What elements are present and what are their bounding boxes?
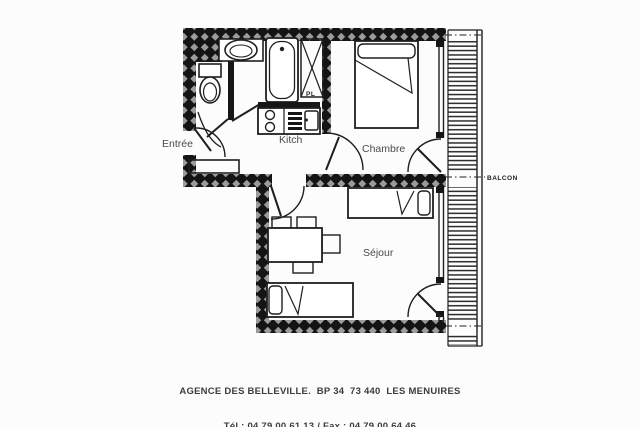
balcony-deck-bedroom [448,41,477,172]
agency-footer: AGENCE DES BELLEVILLE. BP 34 73 440 LES … [0,363,640,427]
room-label-bedroom: Chambre [362,143,405,155]
wall-wc-divider [228,61,234,120]
grill-bar [288,127,302,130]
balcony [445,30,485,346]
balcony-deck-lower [448,333,477,345]
single-bed-top-frame [348,188,433,218]
dining-set [268,217,340,273]
window-post [436,132,444,138]
room-label-kitchen: Kitch [279,134,303,146]
window-post [436,41,444,47]
wc-door-arc [198,112,221,147]
window-post [436,187,444,193]
toilet-tank [199,64,221,77]
window-post [436,277,444,283]
grill-bar [288,112,302,115]
bedroom-balcony-door-leaf [418,149,441,172]
kitchen-counter-strip [258,102,320,108]
single-bed-top [348,188,433,218]
chair [297,217,316,228]
wall-left-upper [183,28,196,131]
bedroom-door-leaf [326,137,339,170]
room-label-living: Séjour [363,247,394,259]
grill-bar [288,117,302,120]
double-bed-frame [355,41,418,128]
agency-phone-line: Tél : 04.79.00.61.13 / Fax : 04.79.00.64… [0,421,640,427]
balcony-deck-living [448,187,477,320]
single-bed-bottom [267,283,353,317]
floor-plan-page: PL Entrée Kitch [0,0,640,427]
grill-bar [288,122,302,125]
closet: PL [301,39,323,98]
bathroom-door-leaf [232,104,260,121]
dining-table [268,228,322,262]
wall-bedroom-living-divider [306,174,446,187]
agency-address-line: AGENCE DES BELLEVILLE. BP 34 73 440 LES … [0,386,640,398]
wc-door-leaf [207,119,228,137]
entrance-door-arc [196,128,225,157]
wardrobe [189,160,239,173]
closet-label: PL [306,91,315,98]
toilet-bowl [200,77,220,103]
living-balcony-door-leaf [418,294,441,317]
single-bed-bottom-frame [267,283,353,317]
room-label-entree: Entrée [162,138,193,150]
kitchenette [258,102,320,134]
living-door-leaf [271,186,281,216]
room-label-balcony: BALCON [487,175,518,182]
chair [322,235,340,253]
wall-living-bottom [256,320,446,333]
kitchen-faucet [305,119,308,122]
bedroom-door-arc [326,133,363,170]
chair [293,262,313,273]
bathtub-drain [280,47,284,51]
double-bed [355,41,418,128]
